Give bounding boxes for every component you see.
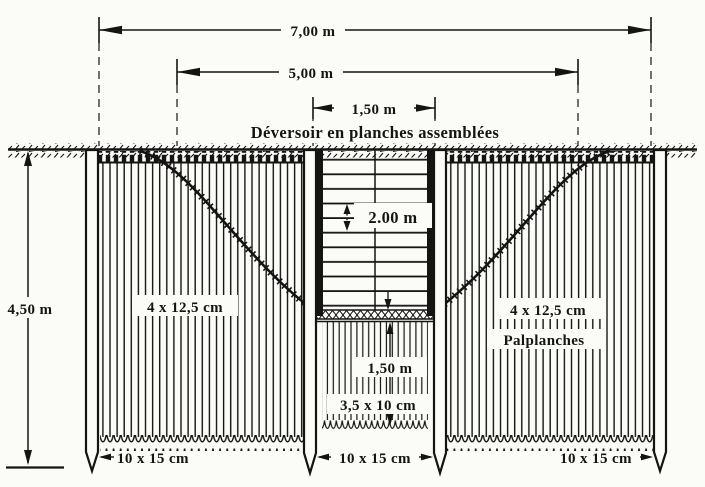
weir-cross-section-diagram: 7,00 m 5,00 m 1,50 m Déversoir en planch… xyxy=(0,0,705,487)
center-post-size-label: 10 x 15 cm xyxy=(339,451,411,467)
weir-sill xyxy=(315,310,435,319)
dim-overall-width-label: 7,00 m xyxy=(291,24,336,40)
diagram-title: Déversoir en planches assemblées xyxy=(251,123,500,142)
central-pile-tips xyxy=(322,417,428,431)
ground-surface xyxy=(8,144,697,158)
ground-texture-lower xyxy=(8,151,697,158)
central-sheet-size-label: 3,5 x 10 cm xyxy=(340,398,416,414)
right-sheet-size-label: 4 x 12,5 cm xyxy=(510,303,586,319)
left-sheet-size-label: 4 x 12,5 cm xyxy=(147,300,223,316)
dim-weir-depth: 2.00 m xyxy=(344,203,433,231)
dim-weir-width-label: 1,50 m xyxy=(352,102,397,118)
right-pile-tips xyxy=(437,435,654,451)
sheet-piles-name-label: Palplanches xyxy=(503,333,584,349)
left-center-post xyxy=(304,150,316,473)
engineering-drawing-page: 7,00 m 5,00 m 1,50 m Déversoir en planch… xyxy=(0,0,705,487)
dim-excavation-depth-label: 4,50 m xyxy=(8,302,53,318)
right-center-post xyxy=(434,150,446,473)
left-pile-tips xyxy=(100,435,312,451)
dim-central-sheet-length-label: 1,50 m xyxy=(368,361,413,377)
dim-weir-depth-label: 2.00 m xyxy=(368,208,417,227)
dim-inner-width-label: 5,00 m xyxy=(289,66,334,82)
weir-box xyxy=(304,150,446,322)
left-post-size-label: 10 x 15 cm xyxy=(117,451,189,467)
right-corner-post xyxy=(654,150,666,471)
right-post-size-label: 10 x 15 cm xyxy=(560,451,632,467)
left-corner-post xyxy=(86,150,98,471)
